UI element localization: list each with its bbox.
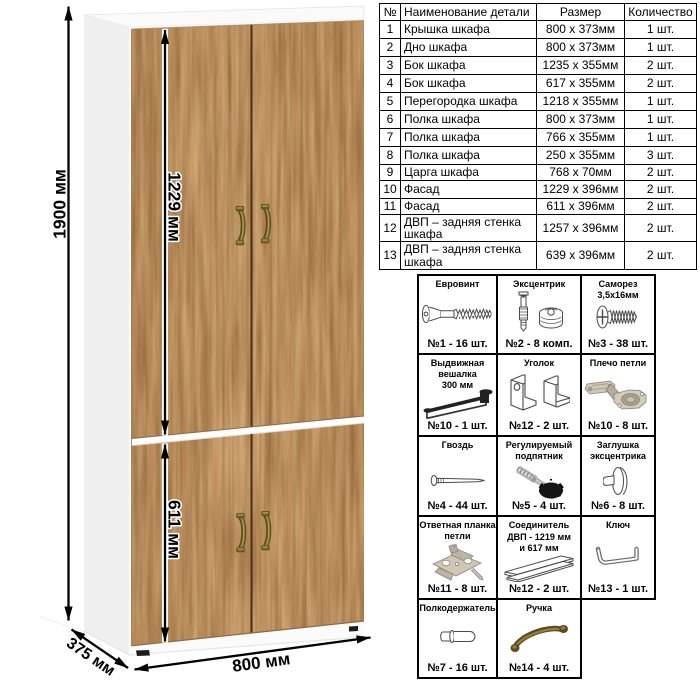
svg-text:611 мм: 611 мм (165, 500, 185, 559)
svg-text:800 мм: 800 мм (231, 649, 291, 676)
svg-text:1900 мм: 1900 мм (50, 169, 70, 239)
svg-text:1229 мм: 1229 мм (165, 172, 185, 242)
